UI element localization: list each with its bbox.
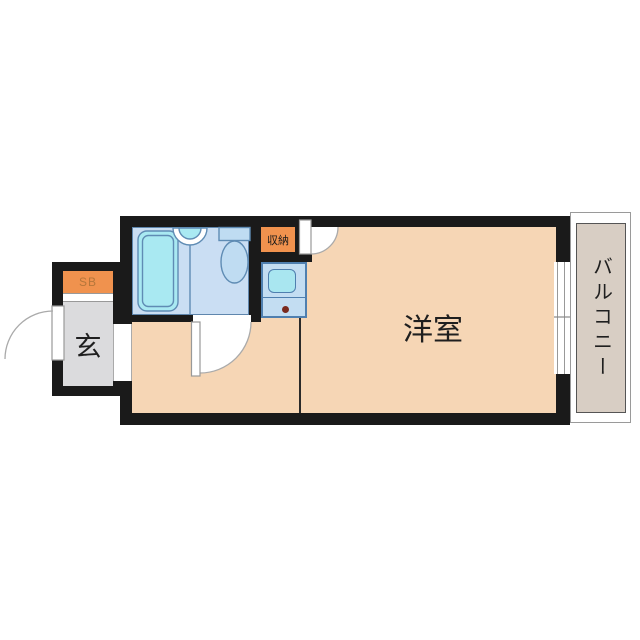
entrance-door-arc <box>5 311 53 359</box>
storage-label: 収納 <box>267 232 289 248</box>
storage-bottom-wall <box>261 252 312 262</box>
balcony-label: バルコニー <box>587 256 616 381</box>
storage-closet: 収納 <box>261 227 295 252</box>
stove-burner-dot <box>282 306 289 313</box>
main-room-label: 洋室 <box>308 305 558 349</box>
room-divider-line <box>299 318 301 413</box>
bathroom-right-wall <box>249 216 261 322</box>
kitchen-sink <box>268 269 296 293</box>
entrance-label: 玄 <box>75 325 102 364</box>
shoe-box: SB <box>63 271 113 293</box>
bathroom-doorway <box>193 315 251 322</box>
kitchen-counter-divider <box>263 297 305 298</box>
balcony: バルコニー <box>576 223 626 413</box>
bathroom <box>132 227 249 315</box>
storage-right-wall <box>295 227 301 252</box>
floorplan-canvas: バルコニー SB 玄 収納 <box>0 0 640 640</box>
entrance-floor: 玄 <box>63 302 113 386</box>
entrance-to-hall-opening <box>113 324 132 381</box>
entrance-step <box>63 293 113 302</box>
shoe-box-label: SB <box>79 275 97 289</box>
kitchen-unit <box>261 262 307 318</box>
